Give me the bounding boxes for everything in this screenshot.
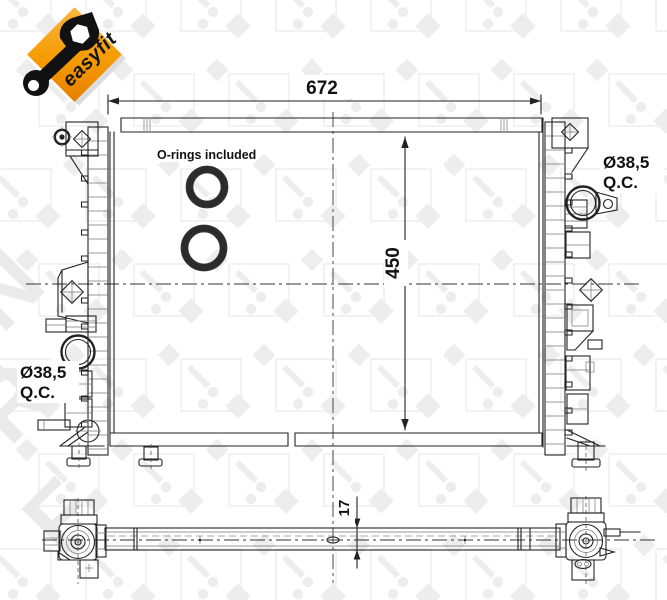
left-port-diameter: Ø38,5	[20, 363, 66, 382]
orings-note-label: O-rings included	[157, 148, 256, 162]
right-mount-marker	[580, 279, 603, 302]
drain-stub	[139, 444, 162, 470]
right-port-label: Ø38,5 Q.C.	[600, 151, 664, 193]
dim-thickness: 17	[336, 492, 360, 568]
left-port-type: Q.C.	[20, 383, 55, 402]
left-port-label: Ø38,5 Q.C.	[17, 361, 79, 403]
radiator-technical-drawing: N R F easyfit	[0, 0, 667, 600]
watermark-letter-n: N	[0, 230, 63, 349]
oring-1	[186, 166, 228, 208]
left-mount-pin	[67, 443, 90, 470]
thickness-dimension-label: 17	[336, 500, 353, 517]
left-cap	[52, 127, 72, 147]
right-port-diameter: Ø38,5	[603, 153, 649, 172]
right-port-type: Q.C.	[603, 173, 638, 192]
oring-2	[181, 225, 227, 271]
height-dimension-label: 450	[383, 247, 404, 279]
left-bottom-boss	[75, 418, 101, 444]
width-dimension-label: 672	[306, 78, 338, 99]
